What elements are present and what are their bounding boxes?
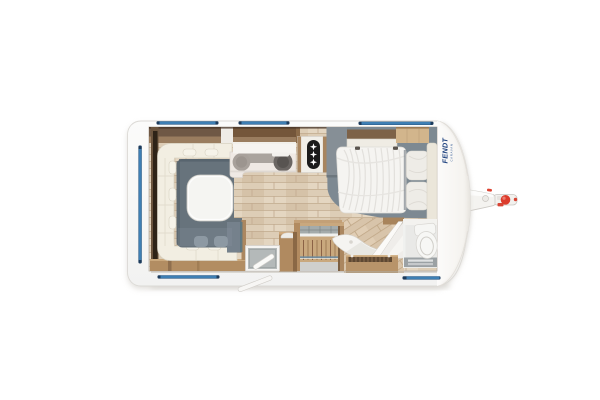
svg-text:CARAVAN: CARAVAN: [450, 143, 454, 161]
svg-text:FENDT: FENDT: [441, 137, 450, 164]
